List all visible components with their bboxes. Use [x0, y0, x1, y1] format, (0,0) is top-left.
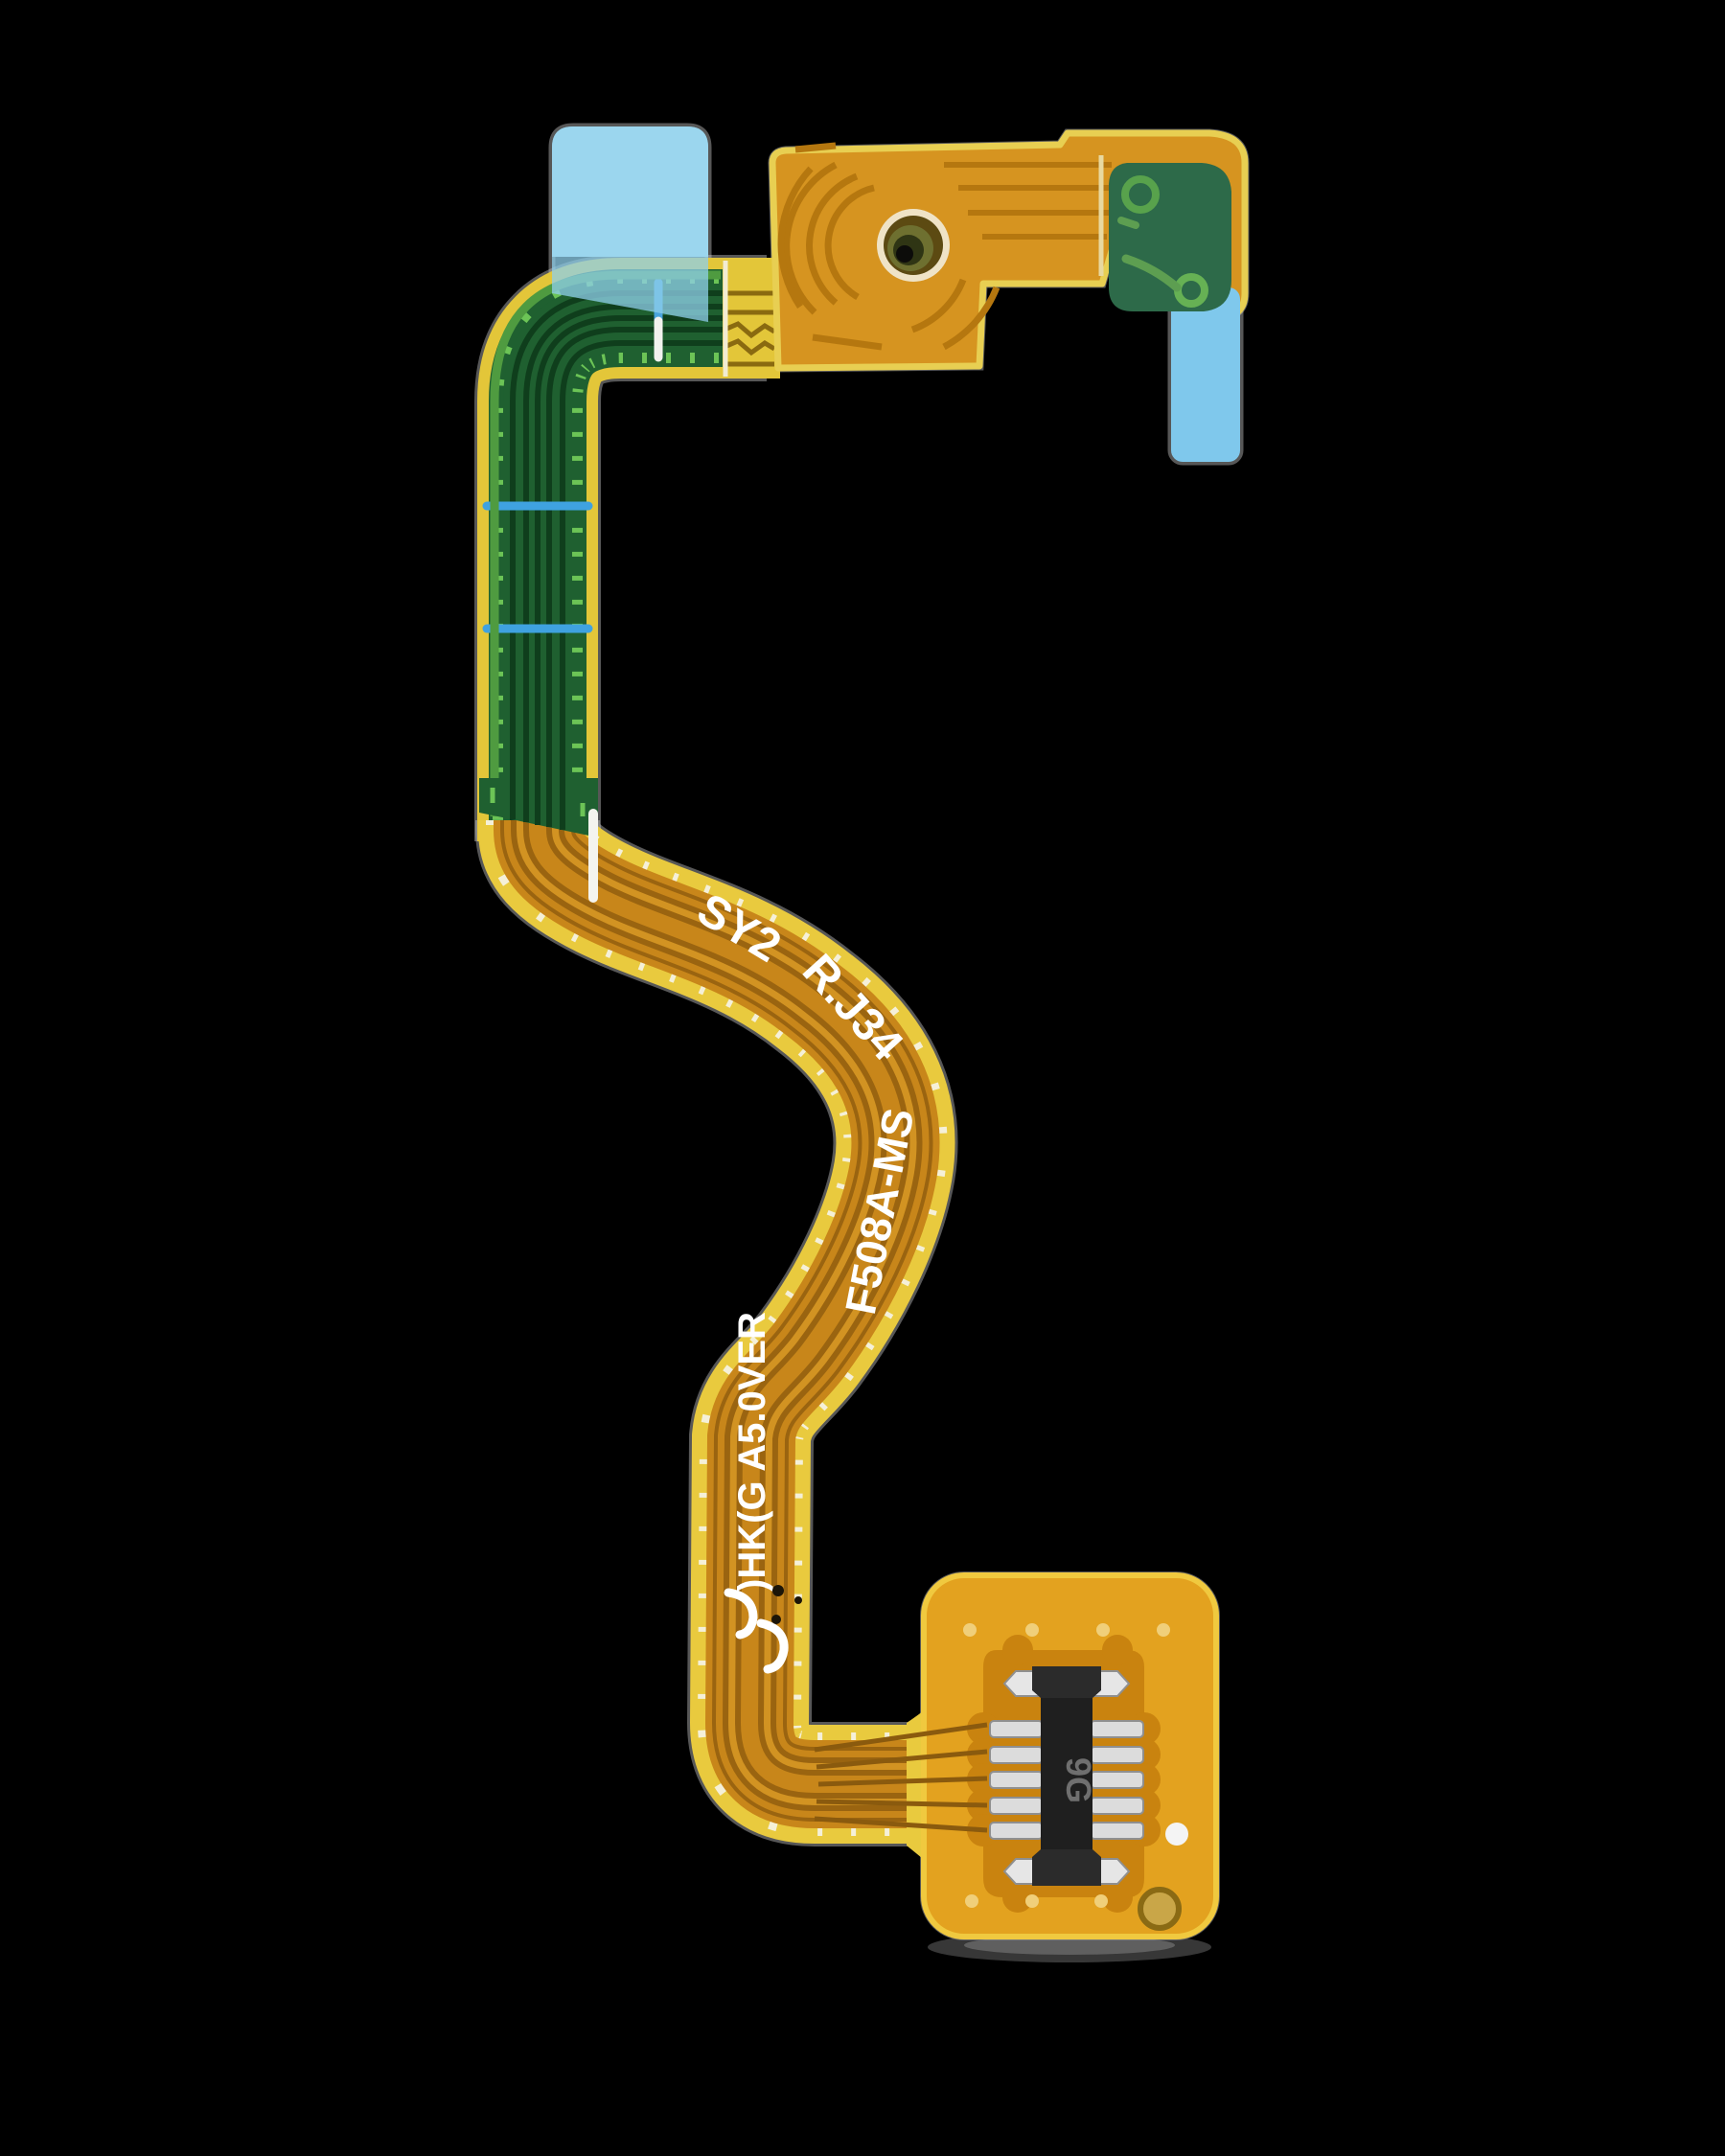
svg-text:)HK(G A5.0VER: )HK(G A5.0VER: [731, 1312, 773, 1592]
svg-text:9G: 9G: [1059, 1757, 1098, 1803]
